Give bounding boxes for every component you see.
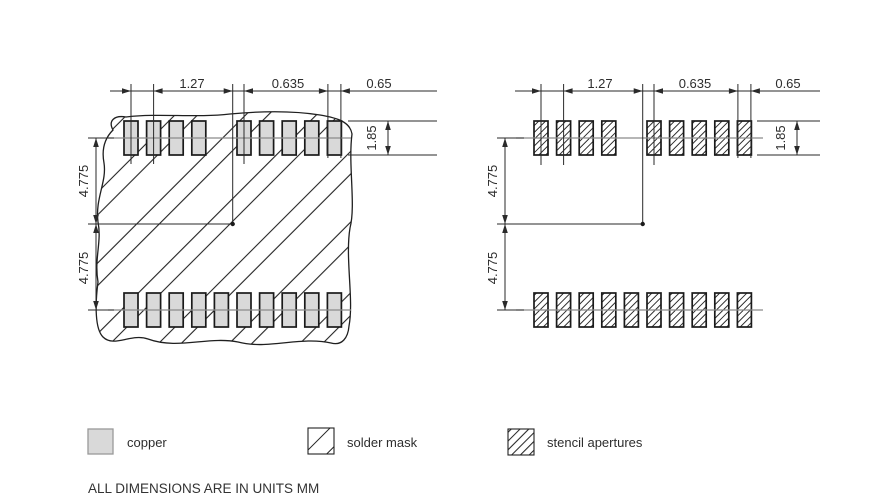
dim-row-spacing-top-label-left: 4.775 — [76, 165, 91, 198]
dim-row-spacing-top-label-right: 4.775 — [485, 165, 500, 198]
dim-pad-height-label-left: 1.85 — [364, 125, 379, 150]
dimension-lines-right — [497, 84, 820, 310]
stencil-apertures-swatch — [508, 429, 534, 455]
dim-pitch-label-right: 1.27 — [587, 76, 612, 91]
dim-half-pitch-label-left: 0.635 — [272, 76, 305, 91]
legend-item-solder-mask: solder mask — [308, 428, 418, 454]
legend-label-solder-mask: solder mask — [347, 435, 418, 450]
legend-label-stencil-apertures: stencil apertures — [547, 435, 643, 450]
legend-item-stencil-apertures: stencil apertures — [508, 429, 643, 455]
dim-pad-height-label-right: 1.85 — [773, 125, 788, 150]
solder-mask-swatch — [308, 428, 334, 454]
dim-pitch-label-left: 1.27 — [179, 76, 204, 91]
copper-solder-mask-view: 1.27 0.635 0.65 1.85 4.775 4.775 — [76, 76, 437, 345]
dim-half-pitch-label-right: 0.635 — [679, 76, 712, 91]
dim-pad-width-label-left: 0.65 — [366, 76, 391, 91]
dim-row-spacing-bottom-label-left: 4.775 — [76, 252, 91, 285]
dim-row-spacing-bottom-label-right: 4.775 — [485, 252, 500, 285]
legend-item-copper: copper — [88, 429, 167, 454]
dim-pad-width-label-right: 0.65 — [775, 76, 800, 91]
units-note: ALL DIMENSIONS ARE IN UNITS MM — [88, 481, 319, 495]
copper-swatch — [88, 429, 113, 454]
legend: copper solder mask stencil apertures — [88, 428, 643, 455]
pattern-center-mark — [641, 222, 645, 226]
pattern-center-mark — [231, 222, 235, 226]
technical-drawing-canvas: 1.27 0.635 0.65 1.85 4.775 4.775 — [0, 0, 880, 495]
land-pattern-drawing-page: 1.27 0.635 0.65 1.85 4.775 4.775 — [0, 0, 880, 495]
stencil-apertures-view: 1.27 0.635 0.65 1.85 4.775 4.775 — [485, 76, 820, 327]
legend-label-copper: copper — [127, 435, 167, 450]
